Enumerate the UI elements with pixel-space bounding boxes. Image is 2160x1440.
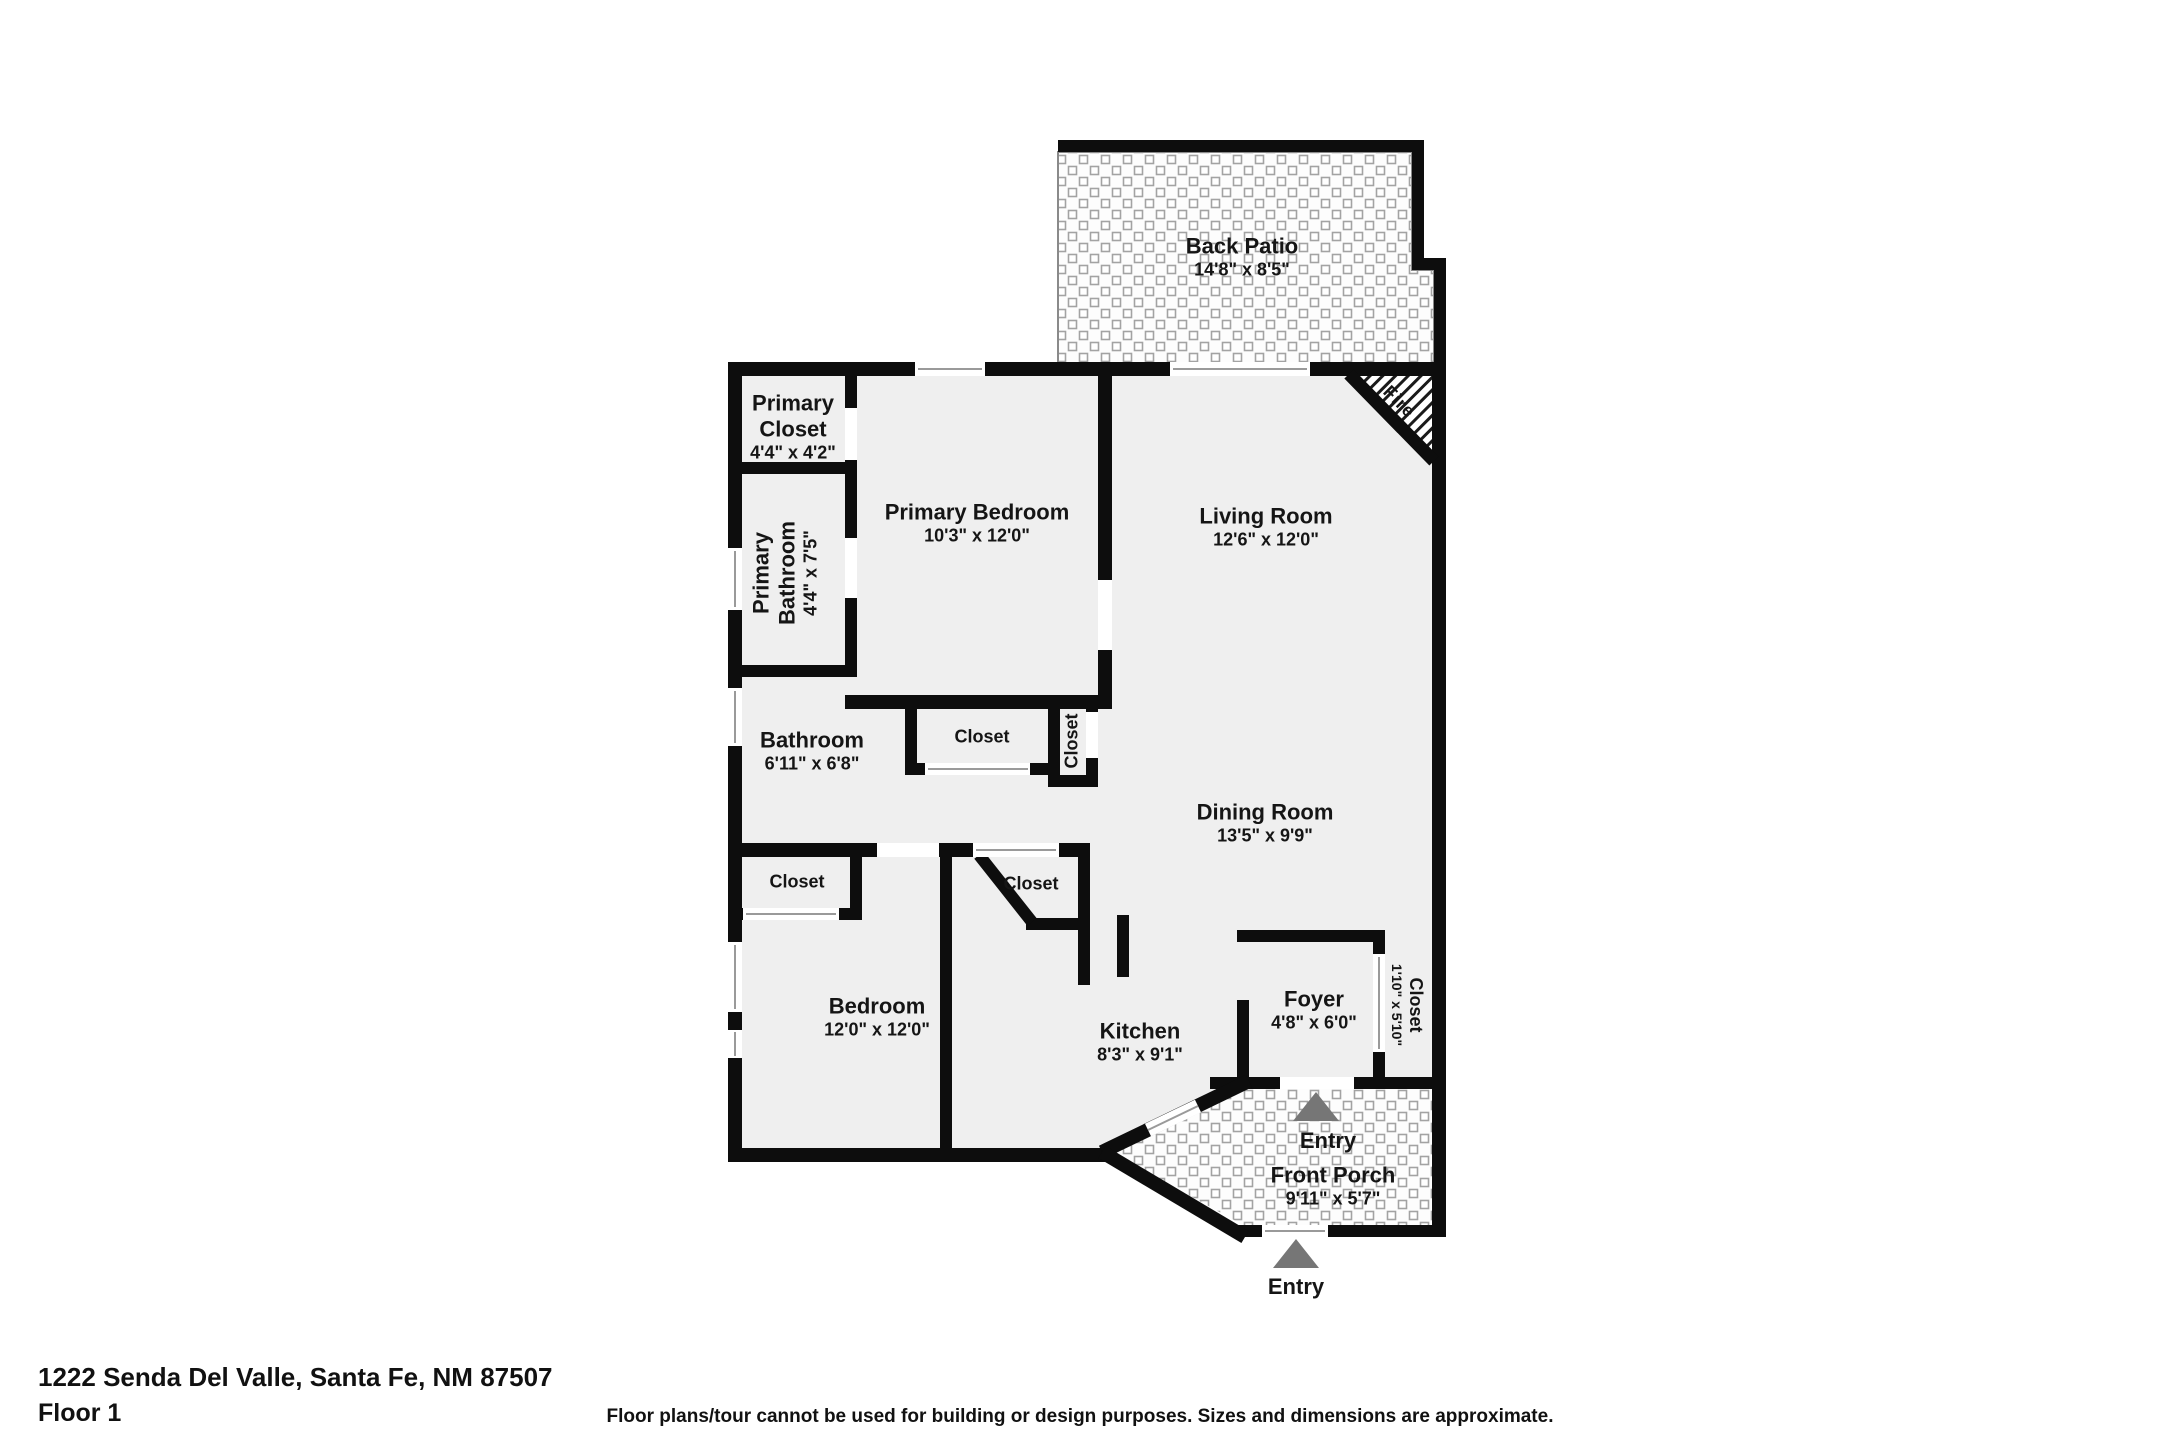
room-label-foyer: Foyer 4'8" x 6'0" <box>1271 986 1357 1033</box>
room-label-closet-linen: Closet <box>1061 713 1082 768</box>
door-gap <box>1086 712 1098 758</box>
room-name: Closet <box>769 871 824 892</box>
room-label-front-porch: Front Porch 9'11" x 5'7" <box>1271 1162 1396 1209</box>
room-dims: 10'3" x 12'0" <box>885 525 1070 546</box>
entry-arrow-icon <box>1273 1239 1319 1268</box>
room-name: Bedroom <box>824 993 930 1019</box>
wall-segment <box>1026 918 1090 930</box>
room-label-dining-room: Dining Room 13'5" x 9'9" <box>1197 799 1334 846</box>
window <box>728 942 742 1012</box>
room-name: Closet <box>1003 873 1058 894</box>
door-gap <box>845 538 857 598</box>
room-label-closet-hall: Closet <box>954 726 1009 747</box>
door-gap <box>877 843 939 857</box>
wall-segment <box>1237 930 1385 942</box>
room-dims: 9'11" x 5'7" <box>1271 1188 1396 1209</box>
room-label-primary-bathroom: Primary Bathroom 4'4" x 7'5" <box>748 510 821 636</box>
window <box>915 362 985 376</box>
room-dims: 4'4" x 4'2" <box>728 442 858 463</box>
entry-text: Entry <box>1268 1274 1324 1299</box>
wall-segment <box>940 857 952 1148</box>
room-dims: 1'10" x 5'10" <box>1388 964 1405 1046</box>
room-label-primary-bedroom: Primary Bedroom 10'3" x 12'0" <box>885 499 1070 546</box>
room-name: Foyer <box>1271 986 1357 1012</box>
wall-segment <box>1098 362 1112 709</box>
room-label-bedroom: Bedroom 12'0" x 12'0" <box>824 993 930 1040</box>
outside-entry-label: Entry <box>1268 1274 1324 1300</box>
room-name: Kitchen <box>1097 1018 1183 1044</box>
room-label-bathroom: Bathroom 6'11" x 6'8" <box>760 727 864 774</box>
window <box>1170 362 1310 376</box>
entry-text: Entry <box>1300 1128 1356 1153</box>
door-gap <box>1280 1077 1354 1089</box>
door-gap <box>1098 580 1112 650</box>
property-address: 1222 Senda Del Valle, Santa Fe, NM 87507 <box>38 1362 553 1393</box>
wall-segment <box>1117 915 1129 977</box>
wall-segment <box>728 462 857 474</box>
room-dims: 4'4" x 7'5" <box>800 510 821 636</box>
wall-segment <box>728 665 857 677</box>
room-label-closet-bedroom: Closet <box>769 871 824 892</box>
room-dims: 6'11" x 6'8" <box>760 753 864 774</box>
room-name: Front Porch <box>1271 1162 1396 1188</box>
room-name: Primary Bathroom <box>748 510 800 636</box>
room-name: Bathroom <box>760 727 864 753</box>
wall-segment <box>1434 258 1446 368</box>
room-name: Closet <box>1405 964 1426 1046</box>
wall-segment <box>1048 775 1098 787</box>
wall-segment <box>1412 140 1424 270</box>
room-label-back-patio: Back Patio 14'8" x 8'5" <box>1186 233 1299 280</box>
porch-entry-label: Entry <box>1300 1128 1356 1154</box>
room-label-closet-kitchen: Closet <box>1003 873 1058 894</box>
window <box>728 688 742 746</box>
room-dims: 12'6" x 12'0" <box>1199 529 1332 550</box>
wall-segment <box>1078 843 1090 985</box>
room-label-kitchen: Kitchen 8'3" x 9'1" <box>1097 1018 1183 1065</box>
room-label-primary-closet: Primary Closet 4'4" x 4'2" <box>728 390 858 463</box>
wall-segment <box>845 695 1112 709</box>
wall-segment <box>728 1148 1112 1162</box>
wall-segment <box>728 362 1446 376</box>
floor-plan-page: Back Patio 14'8" x 8'5" Primary Closet 4… <box>0 0 2160 1440</box>
wall-segment <box>1237 1000 1249 1089</box>
wall-segment <box>1432 362 1446 1237</box>
room-dims: 14'8" x 8'5" <box>1186 259 1299 280</box>
room-name: Primary Bedroom <box>885 499 1070 525</box>
room-dims: 8'3" x 9'1" <box>1097 1044 1183 1065</box>
room-name: Primary Closet <box>728 390 858 442</box>
room-label-living-room: Living Room 12'6" x 12'0" <box>1199 503 1332 550</box>
room-dims: 13'5" x 9'9" <box>1197 825 1334 846</box>
room-name: Dining Room <box>1197 799 1334 825</box>
room-dims: 12'0" x 12'0" <box>824 1019 930 1040</box>
room-name: Closet <box>954 726 1009 747</box>
room-label-closet-foyer: Closet 1'10" x 5'10" <box>1388 964 1426 1046</box>
room-dims: 4'8" x 6'0" <box>1271 1012 1357 1033</box>
wall-segment <box>1048 695 1060 787</box>
room-name: Closet <box>1061 713 1082 768</box>
wall-segment <box>1058 140 1424 152</box>
room-name: Back Patio <box>1186 233 1299 259</box>
window <box>728 548 742 610</box>
disclaimer-text: Floor plans/tour cannot be used for buil… <box>0 1406 2160 1428</box>
window <box>728 1030 742 1058</box>
room-name: Living Room <box>1199 503 1332 529</box>
